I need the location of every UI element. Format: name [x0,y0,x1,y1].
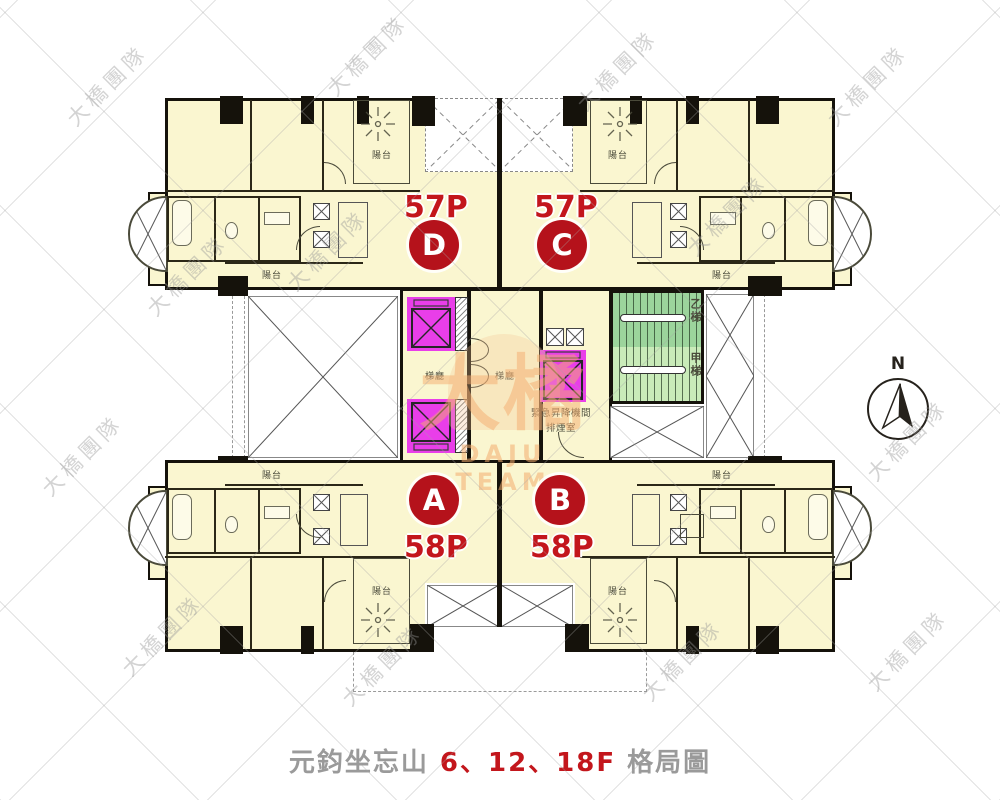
light-well-x-icon [610,406,704,458]
light-well-x-icon [427,585,499,627]
partition-wall [784,488,786,554]
cabinet-x [313,494,330,511]
bathtub [172,200,192,246]
round-balcony [832,196,872,272]
column [563,96,587,126]
x-brace-icon [834,198,870,270]
partition-wall [676,558,678,650]
balcony-label: 陽台 [596,148,640,161]
light-well-x-icon [706,294,754,376]
round-balcony [832,490,872,566]
cabinet-x [670,494,687,511]
partition-wall [250,558,252,650]
balcony-edge [225,484,363,486]
tree-icon [600,600,640,640]
kitchen-island [632,494,660,546]
column [686,96,699,124]
round-balcony [128,490,168,566]
watermark-text: 大橋團隊 [60,38,155,133]
watermark-text: 大橋團隊 [35,408,130,503]
tree-icon [358,600,398,640]
partition-wall [322,558,324,650]
column [686,626,699,654]
compass [867,378,929,440]
partition-wall [748,558,750,650]
partition-wall [740,488,742,554]
balcony-label: 陽台 [360,148,404,161]
column [756,96,779,124]
balcony-label: 陽台 [360,584,404,597]
watermark-text: 大橋團隊 [860,603,955,698]
stair-landing [620,314,686,322]
balcony-edge [637,262,775,264]
unit-c-badge: C [537,220,587,270]
partition-wall [214,196,216,262]
light-well-x-icon [501,585,573,627]
x-brace-icon [130,492,166,564]
podium-dashed-outline [353,652,647,692]
north-arrow-icon [869,380,926,437]
kitchen-island [632,202,662,258]
toilet [762,222,775,239]
sink-counter [710,506,736,519]
caption-floors: 6、12、18F [440,748,616,778]
toilet [225,222,238,239]
kitchen-island [338,202,368,258]
balcony-edge [225,262,363,264]
cabinet-x [670,203,687,220]
toilet [225,516,238,533]
light-well-x-icon [248,296,398,458]
tree-icon [600,104,640,144]
column [412,96,435,126]
compass-north-label: N [884,354,912,374]
bathtub [808,494,828,540]
sink-counter [710,212,736,225]
column [410,624,434,652]
unit-a-area: 58P [404,530,464,565]
setback-dash-line [764,294,765,458]
partition-wall [748,100,750,192]
balcony-label: 陽台 [596,584,640,597]
round-balcony [128,196,168,272]
sink-counter [264,212,290,225]
balcony-edge [637,484,775,486]
partition-wall [740,196,742,262]
toilet [762,516,775,533]
sink-counter [264,506,290,519]
x-brace-icon [834,492,870,564]
column [756,626,779,654]
light-well-x-icon [706,376,754,458]
partition-wall [165,190,420,192]
unit-b-badge: B [535,475,585,525]
caption-project-name: 元鈞坐忘山 [289,748,429,778]
partition-wall [580,190,835,192]
stair-b-label: 乙梯 [687,298,703,344]
column [301,626,314,654]
watermark-text: 大橋團隊 [320,8,415,103]
cabinet-x [313,203,330,220]
stair-a-label: 甲梯 [687,352,703,398]
partition-wall [784,196,786,262]
stair-landing [620,366,686,374]
column [565,624,589,652]
bathtub [172,494,192,540]
partition-wall [258,488,260,554]
tree-icon [358,104,398,144]
column [218,276,248,296]
floor-plan-page: 陽台 陽台 陽台 陽台 [0,0,1000,800]
balcony-label: 陽台 [700,468,744,481]
balcony-label: 陽台 [700,268,744,281]
balcony-label: 陽台 [250,468,294,481]
kitchen-island [340,494,368,546]
door-arc [680,514,704,538]
daju-logo-text: 大橘 [418,330,588,442]
partition-wall [250,100,252,192]
bathtub [808,200,828,246]
party-wall-dc [497,98,502,290]
setback-dash-line [244,296,245,458]
light-well-x-icon [427,100,499,170]
unit-b-area: 58P [530,530,590,565]
x-brace-icon [130,198,166,270]
column [220,96,243,124]
balcony-label: 陽台 [250,268,294,281]
partition-wall [676,100,678,192]
setback-dash-line [232,296,233,458]
partition-wall [214,488,216,554]
unit-d-badge: D [409,220,459,270]
caption: 元鈞坐忘山 6、12、18F 格局圖 [0,742,1000,779]
partition-wall [258,196,260,262]
column [301,96,314,124]
caption-suffix: 格局圖 [627,748,711,778]
column [748,276,782,296]
unit-a-badge: A [409,475,459,525]
column [220,626,243,654]
